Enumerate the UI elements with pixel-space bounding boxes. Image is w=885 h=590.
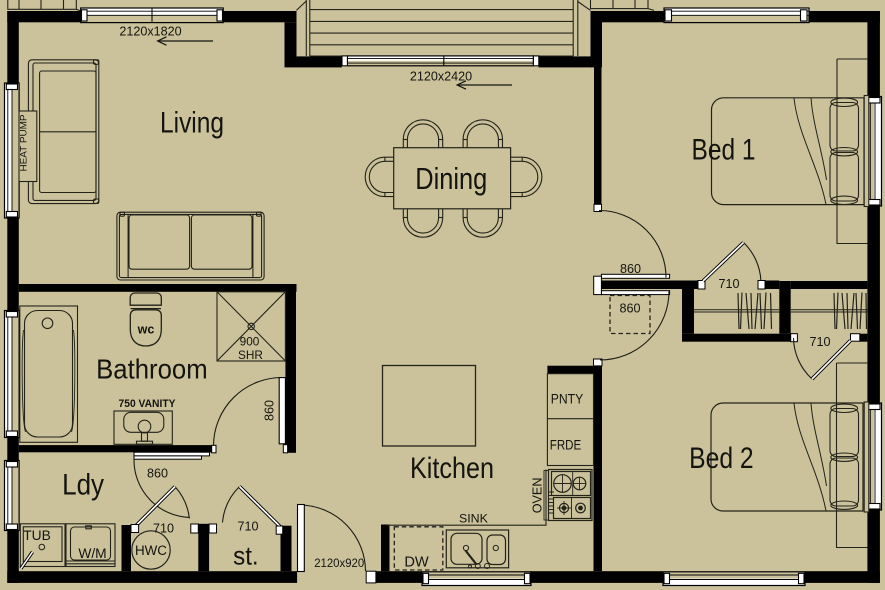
svg-text:wc: wc <box>137 323 155 337</box>
svg-text:FRDE: FRDE <box>550 437 582 453</box>
svg-text:DW: DW <box>404 555 429 571</box>
svg-text:710: 710 <box>153 522 174 536</box>
svg-text:2120x920: 2120x920 <box>314 556 364 570</box>
svg-text:OVEN: OVEN <box>531 478 545 514</box>
svg-text:PNTY: PNTY <box>551 391 584 407</box>
svg-text:Dining: Dining <box>415 161 487 196</box>
svg-text:HWC: HWC <box>135 543 167 558</box>
svg-text:HEAT PUMP: HEAT PUMP <box>19 115 30 172</box>
svg-text:Ldy: Ldy <box>62 469 104 502</box>
svg-text:Bathroom: Bathroom <box>96 353 208 384</box>
svg-text:710: 710 <box>809 335 830 349</box>
svg-text:SINK: SINK <box>459 511 489 525</box>
svg-text:710: 710 <box>237 520 258 534</box>
svg-text:2120x1820: 2120x1820 <box>119 24 181 38</box>
svg-text:Bed 1: Bed 1 <box>692 134 756 167</box>
svg-text:Kitchen: Kitchen <box>410 452 494 485</box>
svg-text:TUB: TUB <box>23 528 51 543</box>
svg-text:860: 860 <box>147 467 168 481</box>
svg-text:st.: st. <box>233 541 259 571</box>
svg-text:SHR: SHR <box>238 348 263 362</box>
svg-text:Bed 2: Bed 2 <box>689 442 754 475</box>
svg-text:860: 860 <box>619 302 640 316</box>
svg-text:900: 900 <box>240 335 260 349</box>
svg-text:2120x2420: 2120x2420 <box>410 69 472 83</box>
svg-text:Living: Living <box>160 107 224 140</box>
svg-text:W/M: W/M <box>78 546 106 561</box>
svg-text:860: 860 <box>263 400 277 421</box>
svg-text:860: 860 <box>620 262 641 276</box>
svg-text:750 VANITY: 750 VANITY <box>119 398 176 410</box>
svg-text:710: 710 <box>718 277 739 291</box>
